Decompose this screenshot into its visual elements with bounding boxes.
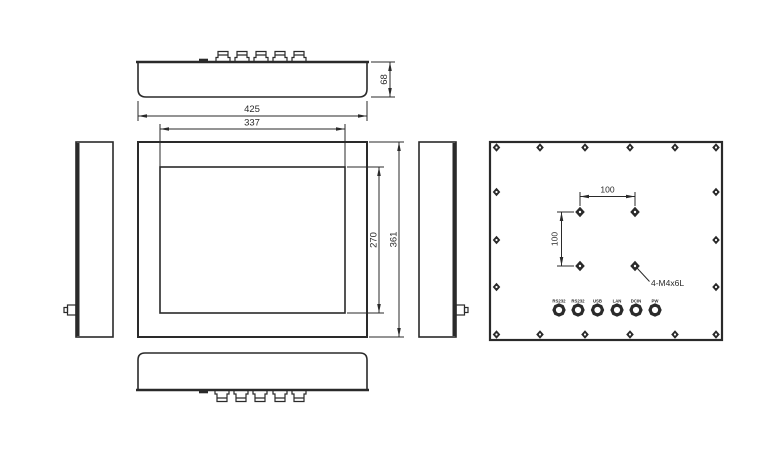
connector-bump [273,390,287,402]
bottom-view [136,353,369,402]
connector-label-rs232-1: RS232 [552,299,566,304]
connector-bump [215,390,229,402]
chassis-screw [671,143,679,152]
top-connector-bumps [216,52,306,63]
chassis-screw [493,143,501,152]
connector-label-pw: PW [652,299,660,304]
dim-vesa-horizontal: 100 [580,185,635,207]
back-panel [490,142,722,340]
dimension-drawing: 68 425 337 270 361 [0,0,768,454]
display-area [160,167,345,313]
connector-nut-rs232-2 [571,303,584,316]
dim-display-height-label: 270 [369,232,380,248]
chassis-screw [712,283,720,292]
connector-bump [216,52,230,63]
right-side-body [419,142,456,337]
connector-label-lan: LAN [613,299,622,304]
io-connectors: RS232 RS232 USB LAN DCIN PW [552,299,661,317]
connector-bump [234,390,248,402]
dim-overall-width-label: 425 [244,104,260,115]
front-bezel [138,142,367,337]
left-side-body [76,142,113,337]
dim-vesa-vertical: 100 [550,212,575,266]
chassis-screw [712,236,720,245]
chassis-screw [712,188,720,197]
connector-bump [292,52,306,63]
mount-screw-spec-label: 4-M4x6L [651,278,684,288]
chassis-screw [712,143,720,152]
side-connector-bump [68,305,77,315]
dim-overall-height-label: 361 [389,232,400,248]
chassis-screw [493,330,501,339]
dim-display-width-label: 337 [244,118,260,129]
connector-bump [253,390,267,402]
bottom-connector-bumps [215,390,306,402]
connector-nut-pw [648,303,661,316]
connector-bump [235,52,249,63]
chassis-screw [581,330,589,339]
connector-label-rs232-2: RS232 [571,299,585,304]
chassis-screw [536,143,544,152]
chassis-screw [581,143,589,152]
connector-label-dcin: DCIN [631,299,642,304]
connector-nut-rs232-1 [552,303,565,316]
chassis-screw [712,330,720,339]
drawing-canvas: 68 425 337 270 361 [0,0,768,454]
dim-depth: 68 [371,62,395,97]
dim-vesa-vertical-label: 100 [550,232,560,246]
side-connector-tip [64,308,68,313]
chassis-screw [626,330,634,339]
chassis-screw [493,236,501,245]
chassis-screw [671,330,679,339]
chassis-screw [493,188,501,197]
top-view: 68 [136,52,395,98]
mount-screw-callout: 4-M4x6L [637,268,684,288]
connector-nut-usb [591,303,604,316]
left-side-view [64,142,113,337]
connector-nut-dcin [629,303,642,316]
side-connector-tip [465,308,469,313]
leader-line [637,268,650,282]
vesa-hole [575,261,585,272]
connector-bump [273,52,287,63]
side-connector-bump [456,305,465,315]
vesa-hole [630,207,640,218]
chassis-screw [536,330,544,339]
top-view-body [138,62,367,97]
bottom-view-body [138,353,367,390]
connector-label-usb: USB [593,299,602,304]
connector-bump [254,52,268,63]
vesa-hole [575,207,585,218]
chassis-screws [493,143,720,339]
dim-depth-label: 68 [379,74,390,85]
chassis-screw [626,143,634,152]
chassis-screw [493,283,501,292]
dim-display-height: 270 [347,167,384,313]
back-view: 100 100 4-M4x6L RS232 RS232 USB LAN DCIN… [490,142,722,340]
dim-vesa-horizontal-label: 100 [600,185,614,195]
connector-nut-lan [610,303,623,316]
vesa-mount-holes [575,207,640,272]
right-side-view [419,142,468,337]
front-view: 270 361 [138,142,404,337]
connector-bump [292,390,306,402]
